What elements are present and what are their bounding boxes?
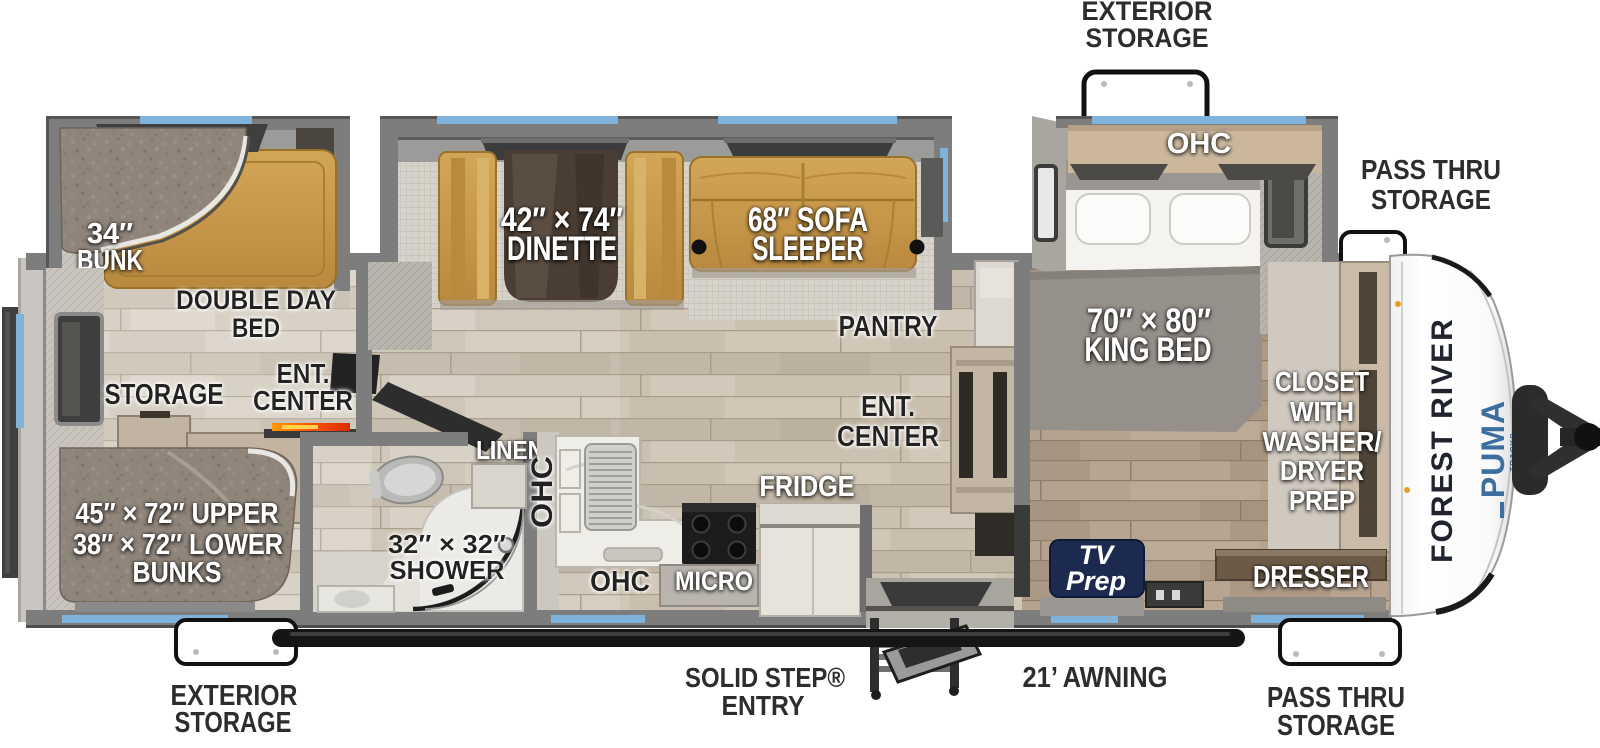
svg-text:21’ AWNING: 21’ AWNING (1023, 662, 1168, 694)
svg-text:45″ × 72″ UPPER: 45″ × 72″ UPPER (76, 498, 279, 530)
svg-text:SHOWER: SHOWER (390, 555, 505, 585)
svg-text:STORAGE: STORAGE (105, 379, 224, 411)
svg-text:WITH: WITH (1290, 396, 1354, 427)
svg-text:SOLID STEP®: SOLID STEP® (685, 662, 845, 693)
svg-text:ENTRY: ENTRY (722, 690, 805, 721)
svg-text:KING BED: KING BED (1085, 331, 1212, 369)
svg-text:ENT.: ENT. (861, 391, 915, 423)
svg-text:OHC: OHC (526, 456, 559, 528)
svg-text:FOREST RIVER: FOREST RIVER (1426, 317, 1459, 563)
svg-text:DOUBLE DAY: DOUBLE DAY (176, 285, 336, 315)
svg-text:FRIDGE: FRIDGE (760, 471, 855, 503)
svg-text:PUMA: PUMA (1475, 400, 1511, 498)
svg-text:OHC: OHC (590, 566, 650, 598)
svg-text:CENTER: CENTER (253, 385, 353, 416)
svg-text:BED: BED (232, 313, 280, 343)
svg-text:Prep: Prep (1066, 566, 1126, 596)
svg-text:DRESSER: DRESSER (1253, 559, 1369, 594)
svg-text:BUNKS: BUNKS (133, 557, 222, 589)
svg-text:STORAGE: STORAGE (175, 707, 292, 739)
svg-text:OHC: OHC (1167, 128, 1232, 160)
svg-text:PREP: PREP (1289, 485, 1355, 516)
svg-text:WASHER/: WASHER/ (1263, 426, 1382, 457)
svg-text:STORAGE: STORAGE (1371, 184, 1491, 215)
svg-text:STORAGE: STORAGE (1277, 710, 1395, 742)
svg-text:MICRO: MICRO (675, 566, 753, 596)
svg-text:PASS THRU: PASS THRU (1361, 154, 1501, 185)
svg-text:DINETTE: DINETTE (507, 230, 617, 268)
svg-text:CENTER: CENTER (837, 421, 939, 453)
svg-text:STORAGE: STORAGE (1086, 23, 1209, 53)
svg-text:SLEEPER: SLEEPER (753, 230, 864, 268)
svg-text:CLOSET: CLOSET (1275, 366, 1369, 397)
svg-text:PANTRY: PANTRY (839, 311, 938, 343)
svg-text:DRYER: DRYER (1280, 455, 1364, 486)
